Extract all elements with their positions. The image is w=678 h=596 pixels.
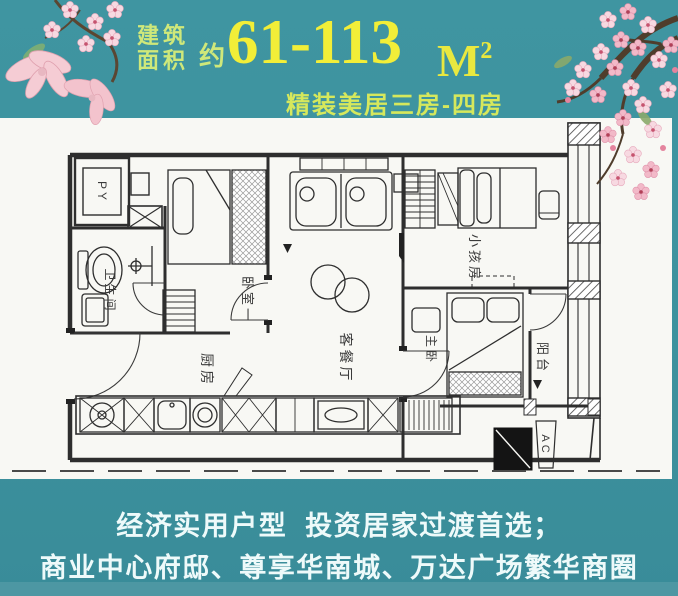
room-label-master-bedroom: 主卧 xyxy=(424,335,438,365)
footer-tagline-2: 商业中心府邸、尊享华南城、万达广场繁华商圈 xyxy=(0,546,678,585)
room-label-bedroom-one: 卧室一 xyxy=(240,276,255,324)
bottom-highlight-strip xyxy=(0,582,678,596)
balcony-column xyxy=(588,399,600,415)
area-unit: M2 xyxy=(437,34,492,87)
approx-prefix: 约 xyxy=(199,36,225,73)
balcony-column xyxy=(524,399,536,415)
area-unit-letter: M xyxy=(437,35,480,86)
blossom-decoration-right xyxy=(513,0,678,205)
room-label-kids-room: 小孩房 xyxy=(467,234,482,282)
building-area-label-line2: 面积 xyxy=(137,48,189,73)
room-label-ac: AC xyxy=(539,434,551,455)
blossom-decoration-left xyxy=(0,0,140,125)
py-shaft xyxy=(75,158,162,228)
room-label-bathroom: 卫生间 xyxy=(103,268,117,313)
room-label-kitchen: 厨房 xyxy=(199,353,215,387)
room-label-py: PY xyxy=(95,181,109,203)
room-label-living-dining: 客餐厅 xyxy=(338,333,354,384)
poster: 建筑 面积 约 61-113 M2 精装美居三房-四房 xyxy=(0,0,678,596)
living-room-furniture xyxy=(290,158,418,312)
area-unit-exponent: 2 xyxy=(480,38,492,64)
building-area-label: 建筑 面积 xyxy=(137,23,189,73)
poster-subtitle: 精装美居三房-四房 xyxy=(286,85,504,120)
footer-tagline-1: 经济实用户型 投资居家过渡首选； xyxy=(0,504,678,543)
building-area-label-line1: 建筑 xyxy=(137,23,189,48)
room-label-balcony: 阳台 xyxy=(535,342,550,374)
area-range-headline: 61-113 xyxy=(227,6,402,79)
magnolia-flower xyxy=(2,46,74,101)
